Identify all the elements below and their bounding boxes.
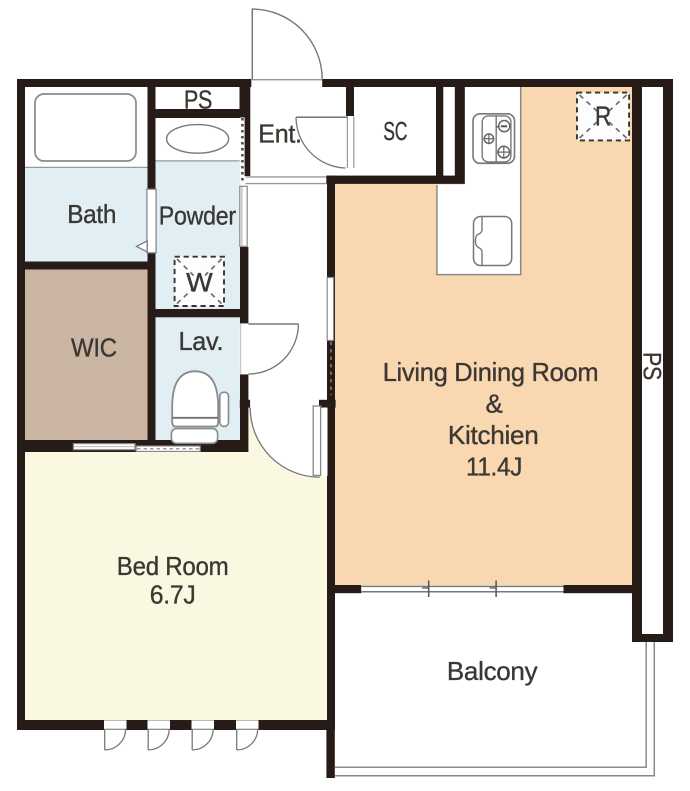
svg-text:Powder: Powder: [159, 201, 237, 231]
svg-text:11.4J: 11.4J: [466, 451, 522, 481]
svg-text:W: W: [186, 268, 213, 298]
svg-text:6.7J: 6.7J: [150, 580, 196, 610]
svg-text:Lav.: Lav.: [179, 326, 224, 356]
svg-text:Bed Room: Bed Room: [117, 551, 229, 581]
svg-text:Kitchien: Kitchien: [448, 420, 539, 450]
svg-text:WIC: WIC: [71, 333, 117, 363]
svg-text:Balcony: Balcony: [447, 656, 538, 686]
svg-text:R: R: [595, 101, 611, 132]
svg-text:Bath: Bath: [67, 199, 116, 229]
svg-text:SC: SC: [383, 116, 407, 146]
svg-text:Living Dining Room: Living Dining Room: [383, 357, 599, 387]
svg-text:PS: PS: [184, 85, 212, 115]
svg-text:&: &: [485, 389, 502, 419]
svg-text:Ent.: Ent.: [258, 119, 301, 149]
svg-text:PS: PS: [637, 352, 665, 380]
